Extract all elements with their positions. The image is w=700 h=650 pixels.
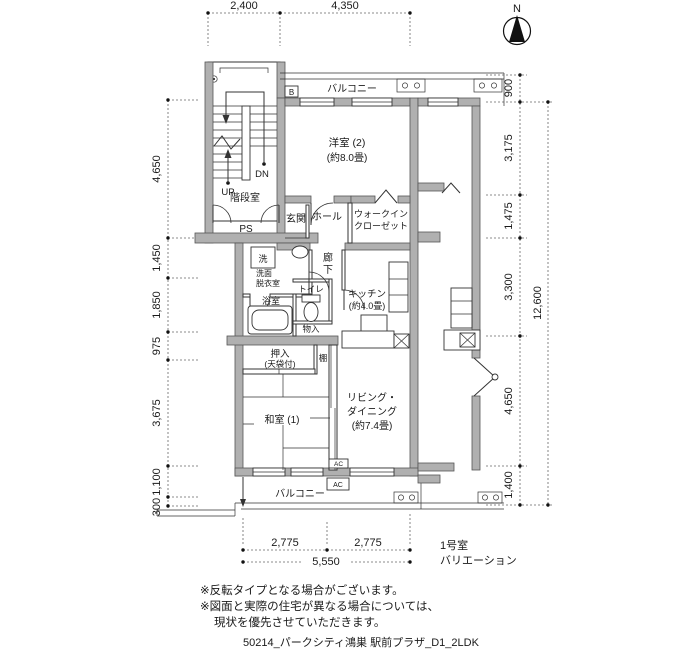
dim-right-5: 1,400 <box>503 471 515 499</box>
label-living-1: リビング・ <box>347 391 397 404</box>
label-balcony-bottom: バルコニー <box>275 488 325 500</box>
toilet-fixtures <box>302 295 320 322</box>
label-bathroom: 浴室 <box>262 295 280 306</box>
note-2: ※図面と実際の住宅が異なる場合については、 <box>200 599 439 613</box>
label-entrance: 玄関 <box>286 212 306 225</box>
label-washroom-1: 洗面 <box>256 268 272 278</box>
dim-left-5: 1,100 <box>151 468 163 496</box>
stairwell-doors <box>213 205 279 223</box>
floor-plan-page: N 2,400 4,350 4,650 1,450 1,850 975 3,67… <box>0 0 700 650</box>
dim-bottom: 2,775 2,775 5,550 <box>241 514 411 568</box>
dim-top-1: 4,350 <box>331 0 359 12</box>
dim-left-4: 3,675 <box>151 399 163 427</box>
label-ac-1: AC <box>334 461 343 468</box>
label-western-room: 洋室 (2) <box>329 136 366 149</box>
label-corridor-1: 廊 <box>323 251 333 264</box>
dim-top: 2,400 4,350 <box>206 0 411 46</box>
wic-folding-door-icon <box>375 190 397 203</box>
room-variation-1: 1号室 <box>440 538 468 552</box>
dim-top-0: 2,400 <box>230 0 258 12</box>
dim-right: 900 3,175 1,475 3,300 4,650 1,400 12,600 <box>486 73 554 506</box>
label-ac-2: AC <box>333 482 343 489</box>
dim-bottom-0: 2,775 <box>271 537 299 549</box>
neighbor-entrance-door <box>474 358 498 396</box>
note-3: 現状を優先させていただきます。 <box>214 615 385 629</box>
dim-left-2: 1,850 <box>151 291 163 319</box>
compass-north-label: N <box>513 3 521 15</box>
label-wic-2: クローゼット <box>354 220 408 231</box>
label-living-size: (約7.4畳) <box>352 419 393 432</box>
label-closet-2: (天袋付) <box>264 359 295 369</box>
label-ps: PS <box>239 224 253 235</box>
note-1: ※反転タイプとなる場合がございます。 <box>200 583 404 597</box>
label-shelf: 棚 <box>319 353 328 363</box>
plan-id: 50214_パークシティ鴻巣 駅前プラザ_D1_2LDK <box>243 635 480 649</box>
dim-right-3: 3,300 <box>503 273 515 301</box>
stairs: UP DN <box>213 92 277 198</box>
label-hall: ホール <box>312 211 342 223</box>
label-western-room-size: (約8.0畳) <box>327 151 368 164</box>
footer: 1号室 バリエーション ※反転タイプとなる場合がございます。 ※図面と実際の住宅… <box>200 538 517 649</box>
label-living-2: ダイニング <box>347 405 397 418</box>
dim-bottom-total: 5,550 <box>312 556 340 568</box>
label-kitchen-size: (約4.0畳) <box>349 300 386 311</box>
dim-left-0: 4,650 <box>151 155 163 183</box>
label-meter-box: B <box>289 88 294 97</box>
label-washer: 洗 <box>258 253 267 264</box>
dim-right-1: 3,175 <box>503 134 515 162</box>
label-washroom-2: 脱衣室 <box>256 278 280 288</box>
compass: N <box>504 3 531 45</box>
label-wic-1: ウォークイン <box>354 209 408 219</box>
bath-fixtures <box>248 306 292 334</box>
label-balcony-top: バルコニー <box>327 83 377 95</box>
dim-right-4: 4,650 <box>503 387 515 415</box>
label-kitchen: キッチン <box>348 289 386 300</box>
dim-left: 4,650 1,450 1,850 975 3,675 1,100 300 <box>151 98 198 516</box>
label-japanese-room: 和室 (1) <box>265 413 300 426</box>
floor-plan-drawing: N 2,400 4,350 4,650 1,450 1,850 975 3,67… <box>0 0 700 650</box>
dim-bottom-1: 2,775 <box>354 537 382 549</box>
dim-right-0: 900 <box>503 79 515 97</box>
label-dn: DN <box>255 169 269 180</box>
neighbor-unit <box>418 98 498 483</box>
dim-left-1: 1,450 <box>151 244 163 272</box>
label-stairwell: 階段室 <box>230 191 260 204</box>
dim-right-overall: 12,600 <box>532 286 544 320</box>
room-variation-2: バリエーション <box>440 554 517 567</box>
dim-left-3: 975 <box>151 337 163 355</box>
neighbor-folding-door-icon <box>442 183 460 193</box>
dim-right-2: 1,475 <box>503 202 515 230</box>
label-toilet: トイレ <box>298 284 324 294</box>
label-corridor-2: 下 <box>323 265 333 276</box>
label-storage: 物入 <box>302 324 320 334</box>
